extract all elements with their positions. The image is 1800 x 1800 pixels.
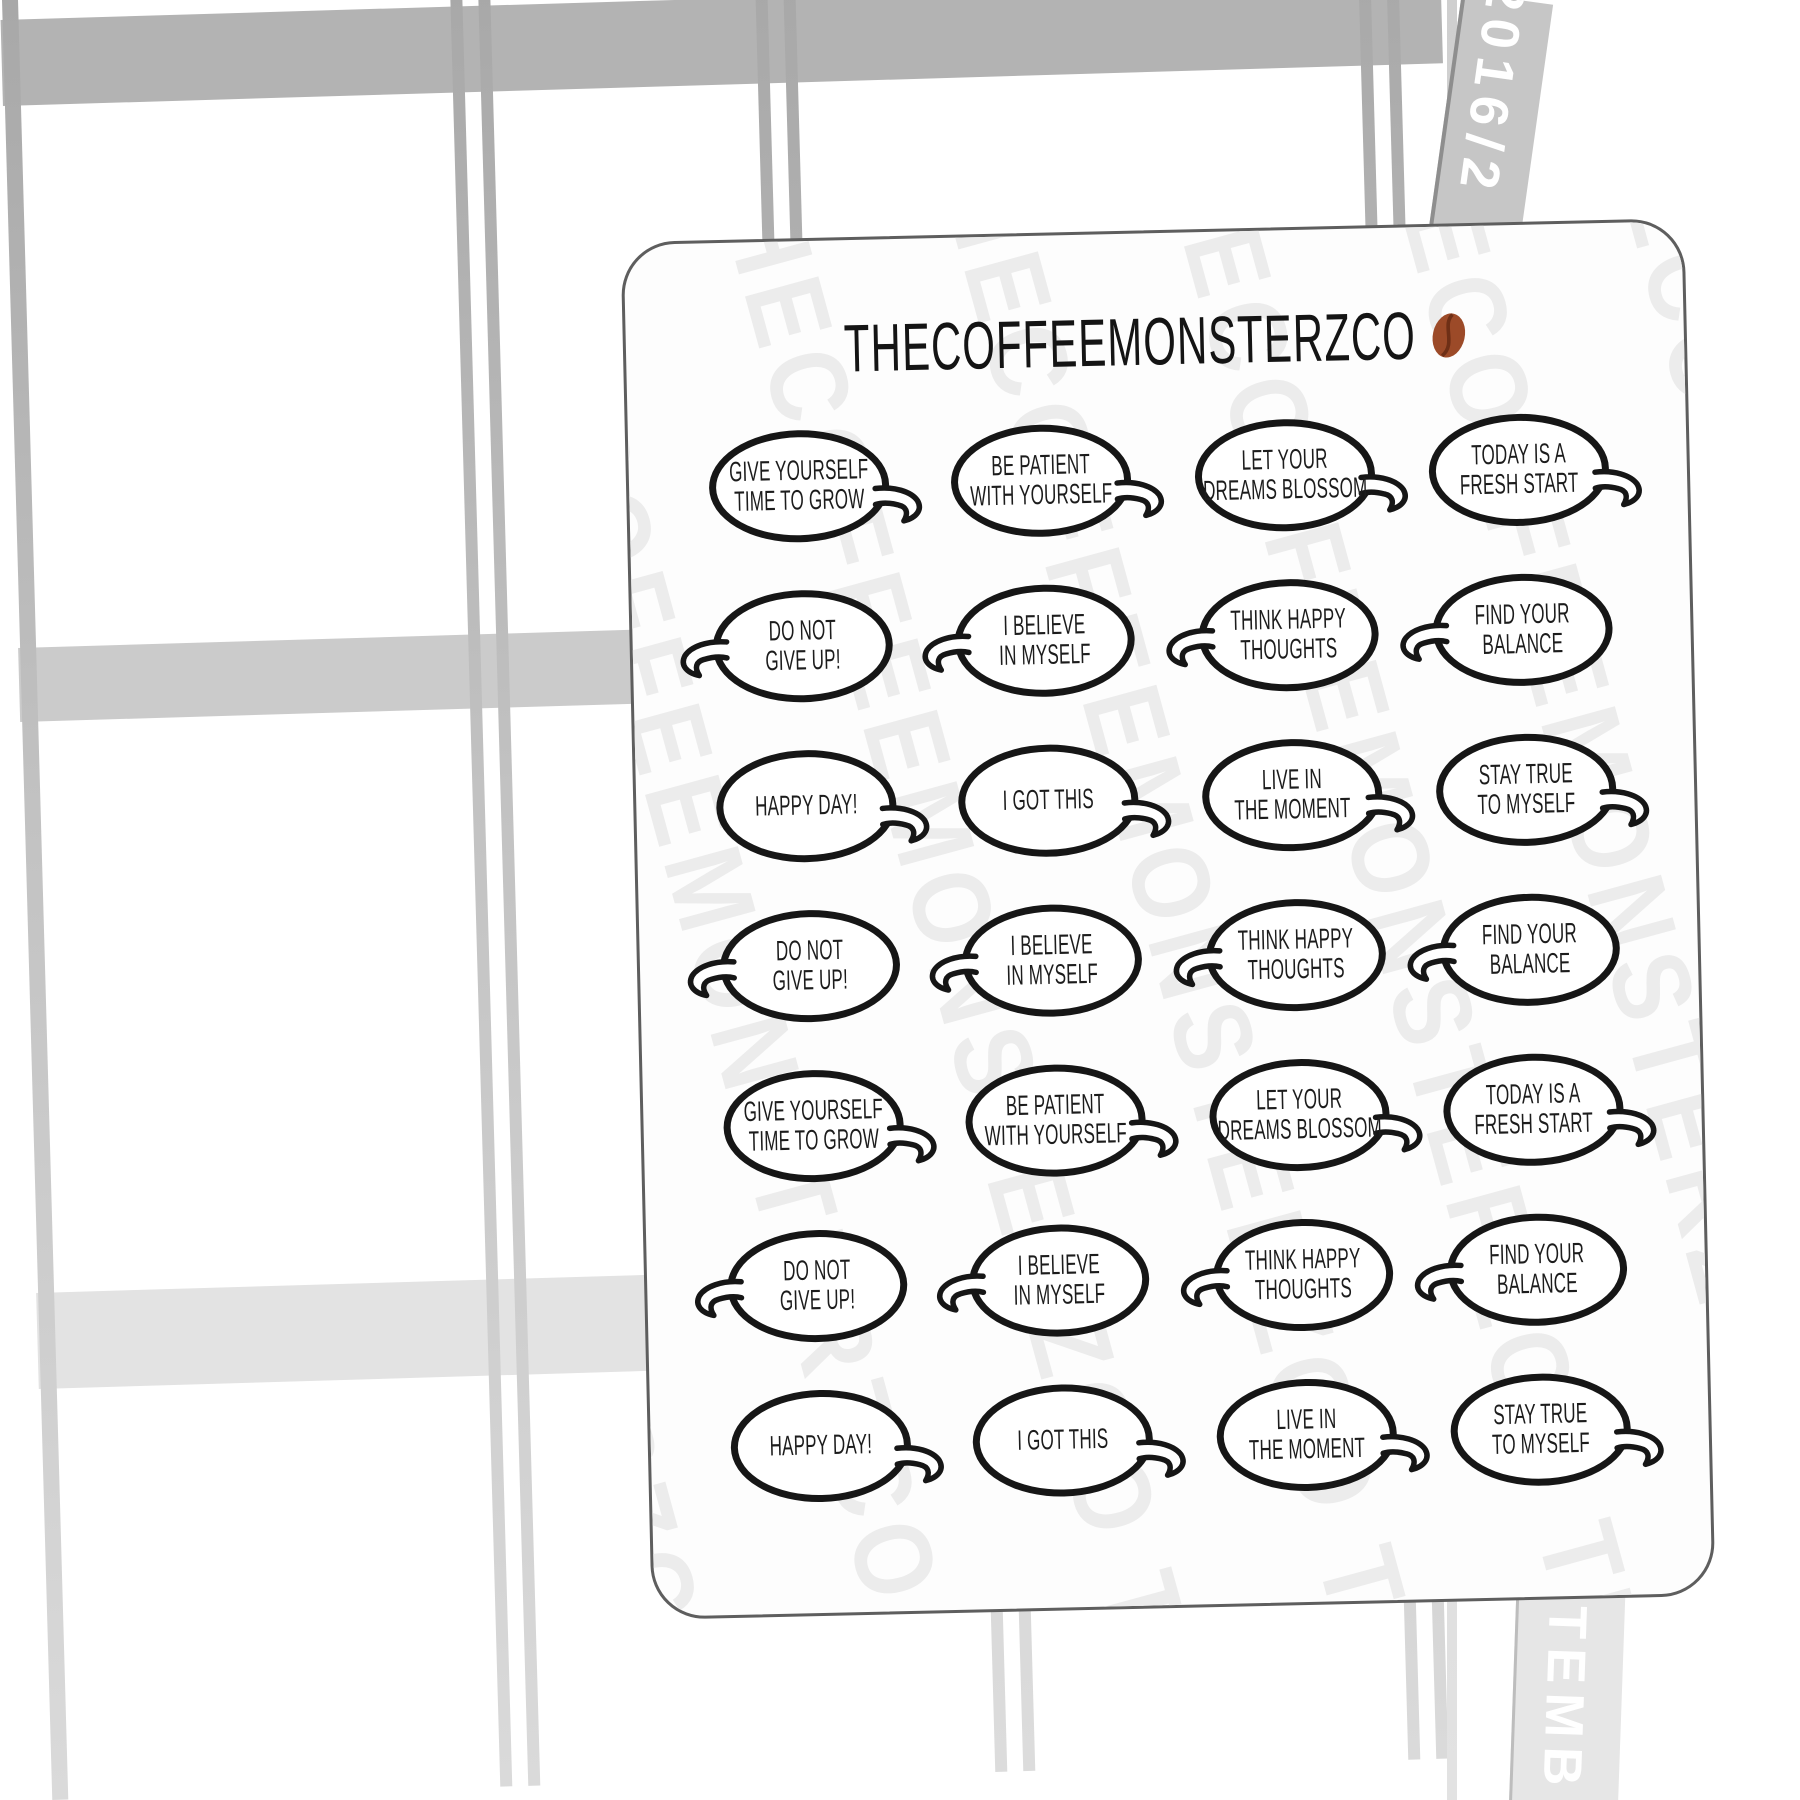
bubble-tail-icon	[1171, 947, 1224, 988]
bubble-text: THINK HAPPY THOUGHTS	[1245, 1244, 1362, 1305]
speech-bubble-sticker: TODAY IS A FRESH START	[1428, 412, 1610, 528]
speech-bubble-sticker: TODAY IS A FRESH START	[1442, 1052, 1624, 1168]
bubble-tail-icon	[927, 952, 980, 993]
bubble-text: GIVE YOURSELF TIME TO GROW	[743, 1095, 884, 1157]
bubble-text: I GOT THIS	[1017, 1425, 1109, 1457]
speech-bubble-sticker: DO NOT GIVE UP!	[719, 908, 901, 1024]
bubble-text: I GOT THIS	[1002, 785, 1094, 817]
bubble-text: DO NOT GIVE UP!	[779, 1256, 856, 1317]
speech-bubble-sticker: FIND YOUR BALANCE	[1431, 572, 1613, 688]
bubble-text: TODAY IS A FRESH START	[1473, 1079, 1593, 1141]
planner-left-edge	[2, 0, 68, 1800]
bubble-text: LET YOUR DREAMS BLOSSOM	[1217, 1084, 1383, 1147]
bubble-text: THINK HAPPY THOUGHTS	[1237, 924, 1354, 985]
bubble-text: FIND YOUR BALANCE	[1482, 919, 1578, 980]
speech-bubble-sticker: DO NOT GIVE UP!	[711, 588, 893, 704]
bubble-tail-icon	[872, 483, 925, 524]
bubble-tail-icon	[894, 1443, 947, 1484]
bubble-text: HAPPY DAY!	[755, 790, 858, 822]
speech-bubble-sticker: FIND YOUR BALANCE	[1439, 892, 1621, 1008]
bubble-tail-icon	[1606, 1107, 1659, 1148]
bubble-tail-icon	[879, 803, 932, 844]
speech-bubble-sticker: I BELIEVE IN MYSELF	[953, 583, 1135, 699]
bubble-grid: GIVE YOURSELF TIME TO GROW BE PATIENT WI…	[624, 221, 1713, 1617]
bubble-text: DO NOT GIVE UP!	[772, 936, 849, 997]
bubble-tail-icon	[1614, 1427, 1667, 1468]
bubble-text: TODAY IS A FRESH START	[1459, 439, 1579, 501]
speech-bubble-sticker: LET YOUR DREAMS BLOSSOM	[1194, 417, 1376, 533]
speech-bubble-sticker: STAY TRUE TO MYSELF	[1435, 732, 1617, 848]
speech-bubble-sticker: I GOT THIS	[972, 1382, 1154, 1498]
speech-bubble-sticker: DO NOT GIVE UP!	[726, 1228, 908, 1344]
bubble-tail-icon	[1599, 787, 1652, 828]
speech-bubble-sticker: THINK HAPPY THOUGHTS	[1205, 897, 1387, 1013]
bubble-tail-icon	[678, 638, 731, 679]
bubble-text: FIND YOUR BALANCE	[1489, 1239, 1585, 1300]
speech-bubble-sticker: THINK HAPPY THOUGHTS	[1212, 1217, 1394, 1333]
speech-bubble-sticker: THINK HAPPY THOUGHTS	[1197, 577, 1379, 693]
bubble-text: STAY TRUE TO MYSELF	[1491, 1399, 1590, 1460]
bubble-tail-icon	[685, 958, 738, 999]
speech-bubble-sticker: HAPPY DAY!	[730, 1388, 912, 1504]
bubble-text: THINK HAPPY THOUGHTS	[1230, 604, 1347, 665]
bubble-tail-icon	[1129, 1118, 1182, 1159]
bubble-tail-icon	[1136, 1438, 1189, 1479]
speech-bubble-sticker: I BELIEVE IN MYSELF	[968, 1223, 1150, 1339]
bubble-text: LIVE IN THE MOMENT	[1233, 764, 1351, 826]
bubble-text: BE PATIENT WITH YOURSELF	[984, 1090, 1127, 1152]
washi-tape-top-text: 2016/2	[1446, 0, 1538, 202]
bubble-tail-icon	[1397, 622, 1450, 663]
bubble-tail-icon	[1365, 792, 1418, 833]
bubble-text: DO NOT GIVE UP!	[764, 616, 841, 677]
speech-bubble-sticker: HAPPY DAY!	[715, 748, 897, 864]
bubble-tail-icon	[1592, 467, 1645, 508]
bubble-text: I BELIEVE IN MYSELF	[998, 610, 1091, 671]
bubble-text: GIVE YOURSELF TIME TO GROW	[729, 455, 870, 517]
bubble-tail-icon	[1114, 478, 1167, 519]
speech-bubble-sticker: LET YOUR DREAMS BLOSSOM	[1208, 1057, 1390, 1173]
bubble-text: HAPPY DAY!	[769, 1430, 872, 1462]
bubble-tail-icon	[887, 1123, 940, 1164]
sticker-sheet: THECOFFEEMONSTERZCO THECOFFEEMONSTERZCO …	[621, 218, 1716, 1620]
bubble-tail-icon	[1121, 798, 1174, 839]
bubble-tail-icon	[919, 633, 972, 674]
planner-header-band	[1, 0, 1443, 106]
speech-bubble-sticker: I BELIEVE IN MYSELF	[961, 903, 1143, 1019]
bubble-tail-icon	[1178, 1267, 1231, 1308]
bubble-text: STAY TRUE TO MYSELF	[1477, 759, 1576, 820]
bubble-tail-icon	[1163, 627, 1216, 668]
speech-bubble-sticker: I GOT THIS	[957, 743, 1139, 859]
speech-bubble-sticker: BE PATIENT WITH YOURSELF	[964, 1063, 1146, 1179]
speech-bubble-sticker: GIVE YOURSELF TIME TO GROW	[722, 1068, 904, 1184]
bubble-text: I BELIEVE IN MYSELF	[1013, 1250, 1106, 1311]
bubble-tail-icon	[1412, 1262, 1465, 1303]
bubble-tail-icon	[1405, 942, 1458, 983]
speech-bubble-sticker: GIVE YOURSELF TIME TO GROW	[708, 428, 890, 544]
bubble-tail-icon	[934, 1272, 987, 1313]
product-photo: 2016/2 PTEMB THECOFFEEMONSTERZCO THECOFF…	[0, 0, 1800, 1800]
speech-bubble-sticker: LIVE IN THE MOMENT	[1215, 1377, 1397, 1493]
speech-bubble-sticker: FIND YOUR BALANCE	[1446, 1212, 1628, 1328]
bubble-text: LET YOUR DREAMS BLOSSOM	[1202, 444, 1368, 507]
speech-bubble-sticker: BE PATIENT WITH YOURSELF	[950, 423, 1132, 539]
bubble-text: FIND YOUR BALANCE	[1474, 599, 1570, 660]
speech-bubble-sticker: LIVE IN THE MOMENT	[1201, 737, 1383, 853]
bubble-tail-icon	[1380, 1432, 1433, 1473]
bubble-text: BE PATIENT WITH YOURSELF	[969, 450, 1112, 512]
bubble-tail-icon	[692, 1278, 745, 1319]
bubble-text: LIVE IN THE MOMENT	[1248, 1404, 1366, 1466]
bubble-text: I BELIEVE IN MYSELF	[1005, 930, 1098, 991]
speech-bubble-sticker: STAY TRUE TO MYSELF	[1449, 1372, 1631, 1488]
